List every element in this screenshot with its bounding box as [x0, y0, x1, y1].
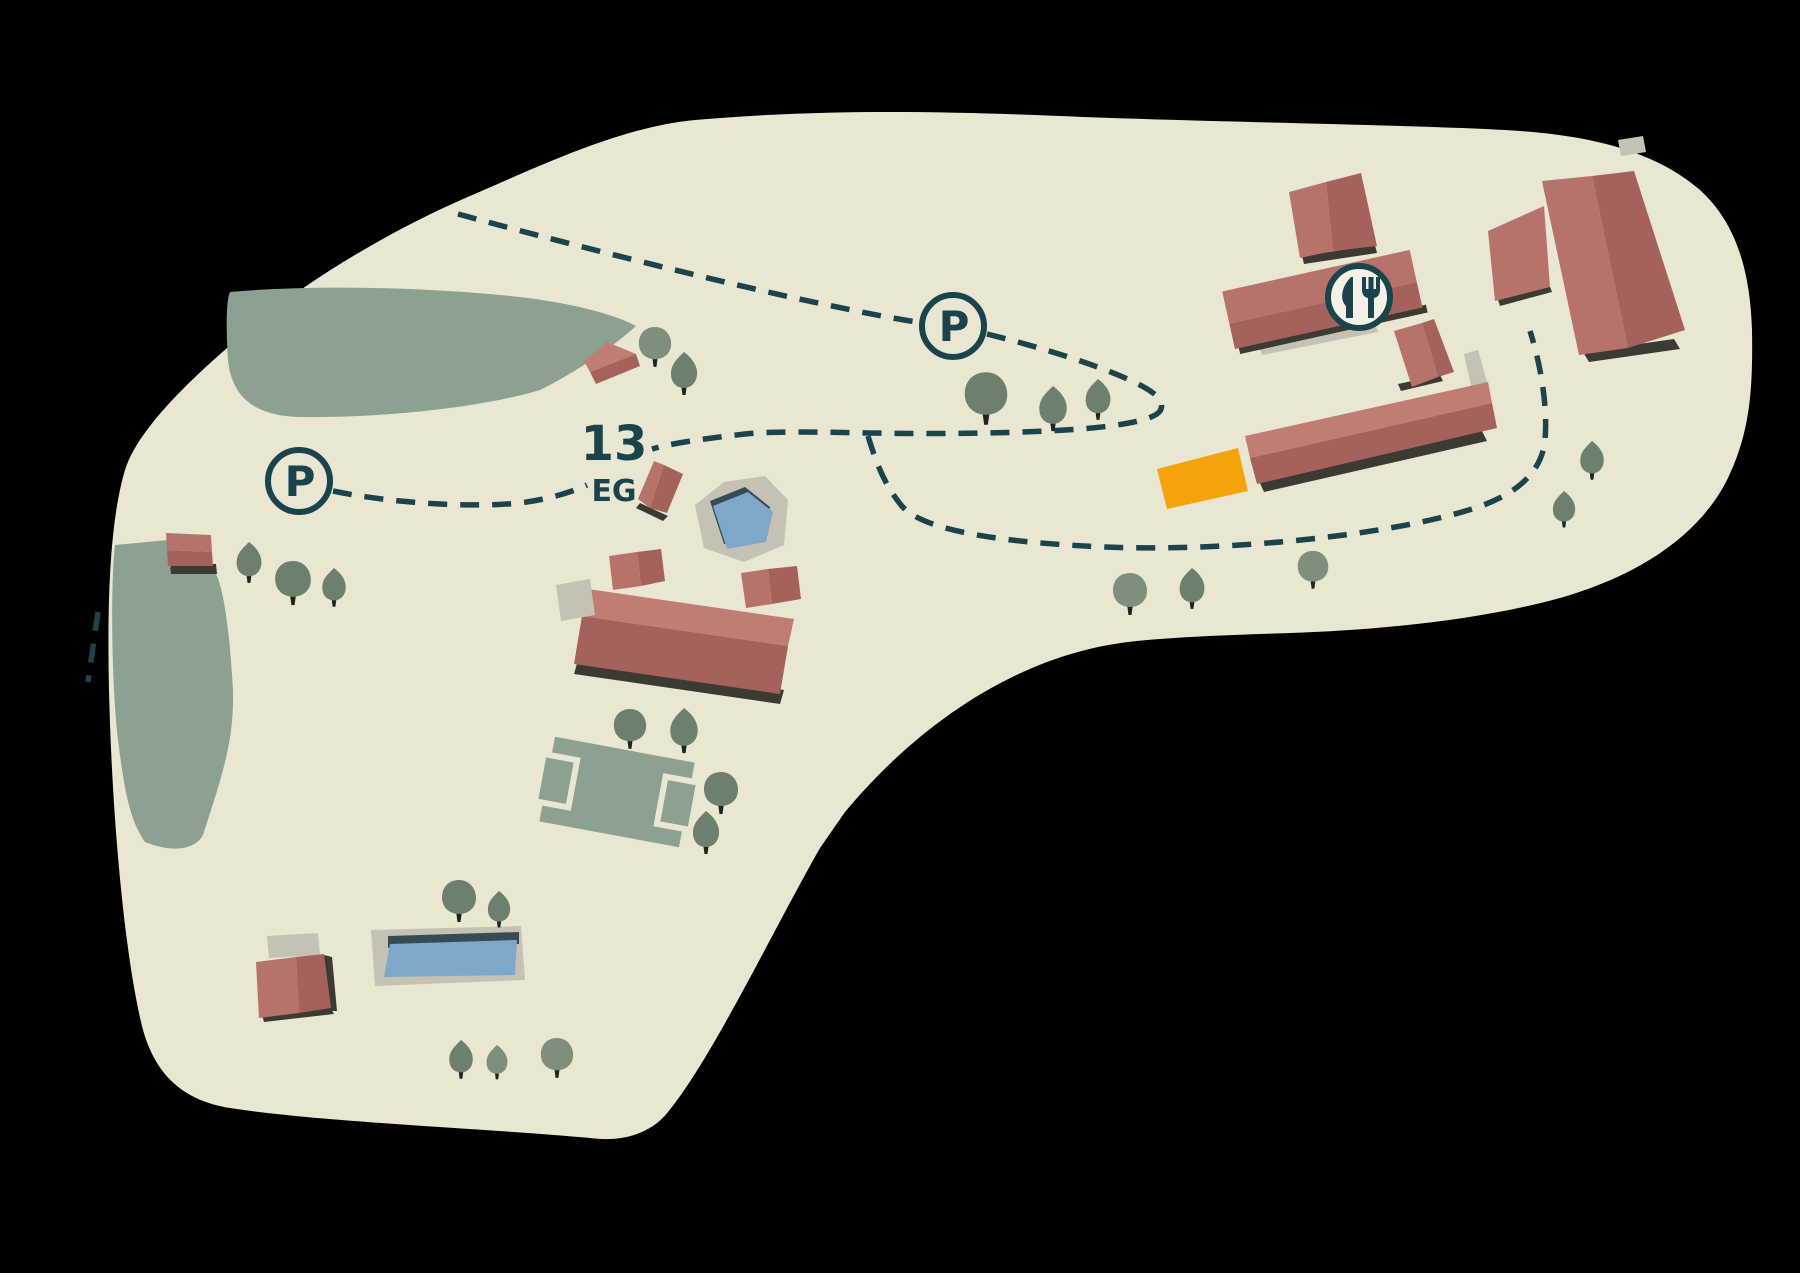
building-meadow-west — [166, 533, 217, 574]
building-number: 13 — [581, 416, 648, 472]
parking-west-label: P — [285, 457, 316, 506]
restaurant-marker[interactable] — [1328, 266, 1390, 328]
swimming-pool — [371, 926, 525, 986]
floor-label: EG — [591, 474, 636, 509]
goal-left — [535, 754, 577, 807]
goal-right — [657, 777, 699, 830]
parking-marker-west[interactable]: P — [268, 450, 330, 512]
terrace-gray — [556, 579, 595, 621]
site-map: P P 13 EG — [0, 0, 1800, 1273]
parking-north-label: P — [939, 302, 970, 351]
parking-marker-north[interactable]: P — [922, 295, 984, 357]
